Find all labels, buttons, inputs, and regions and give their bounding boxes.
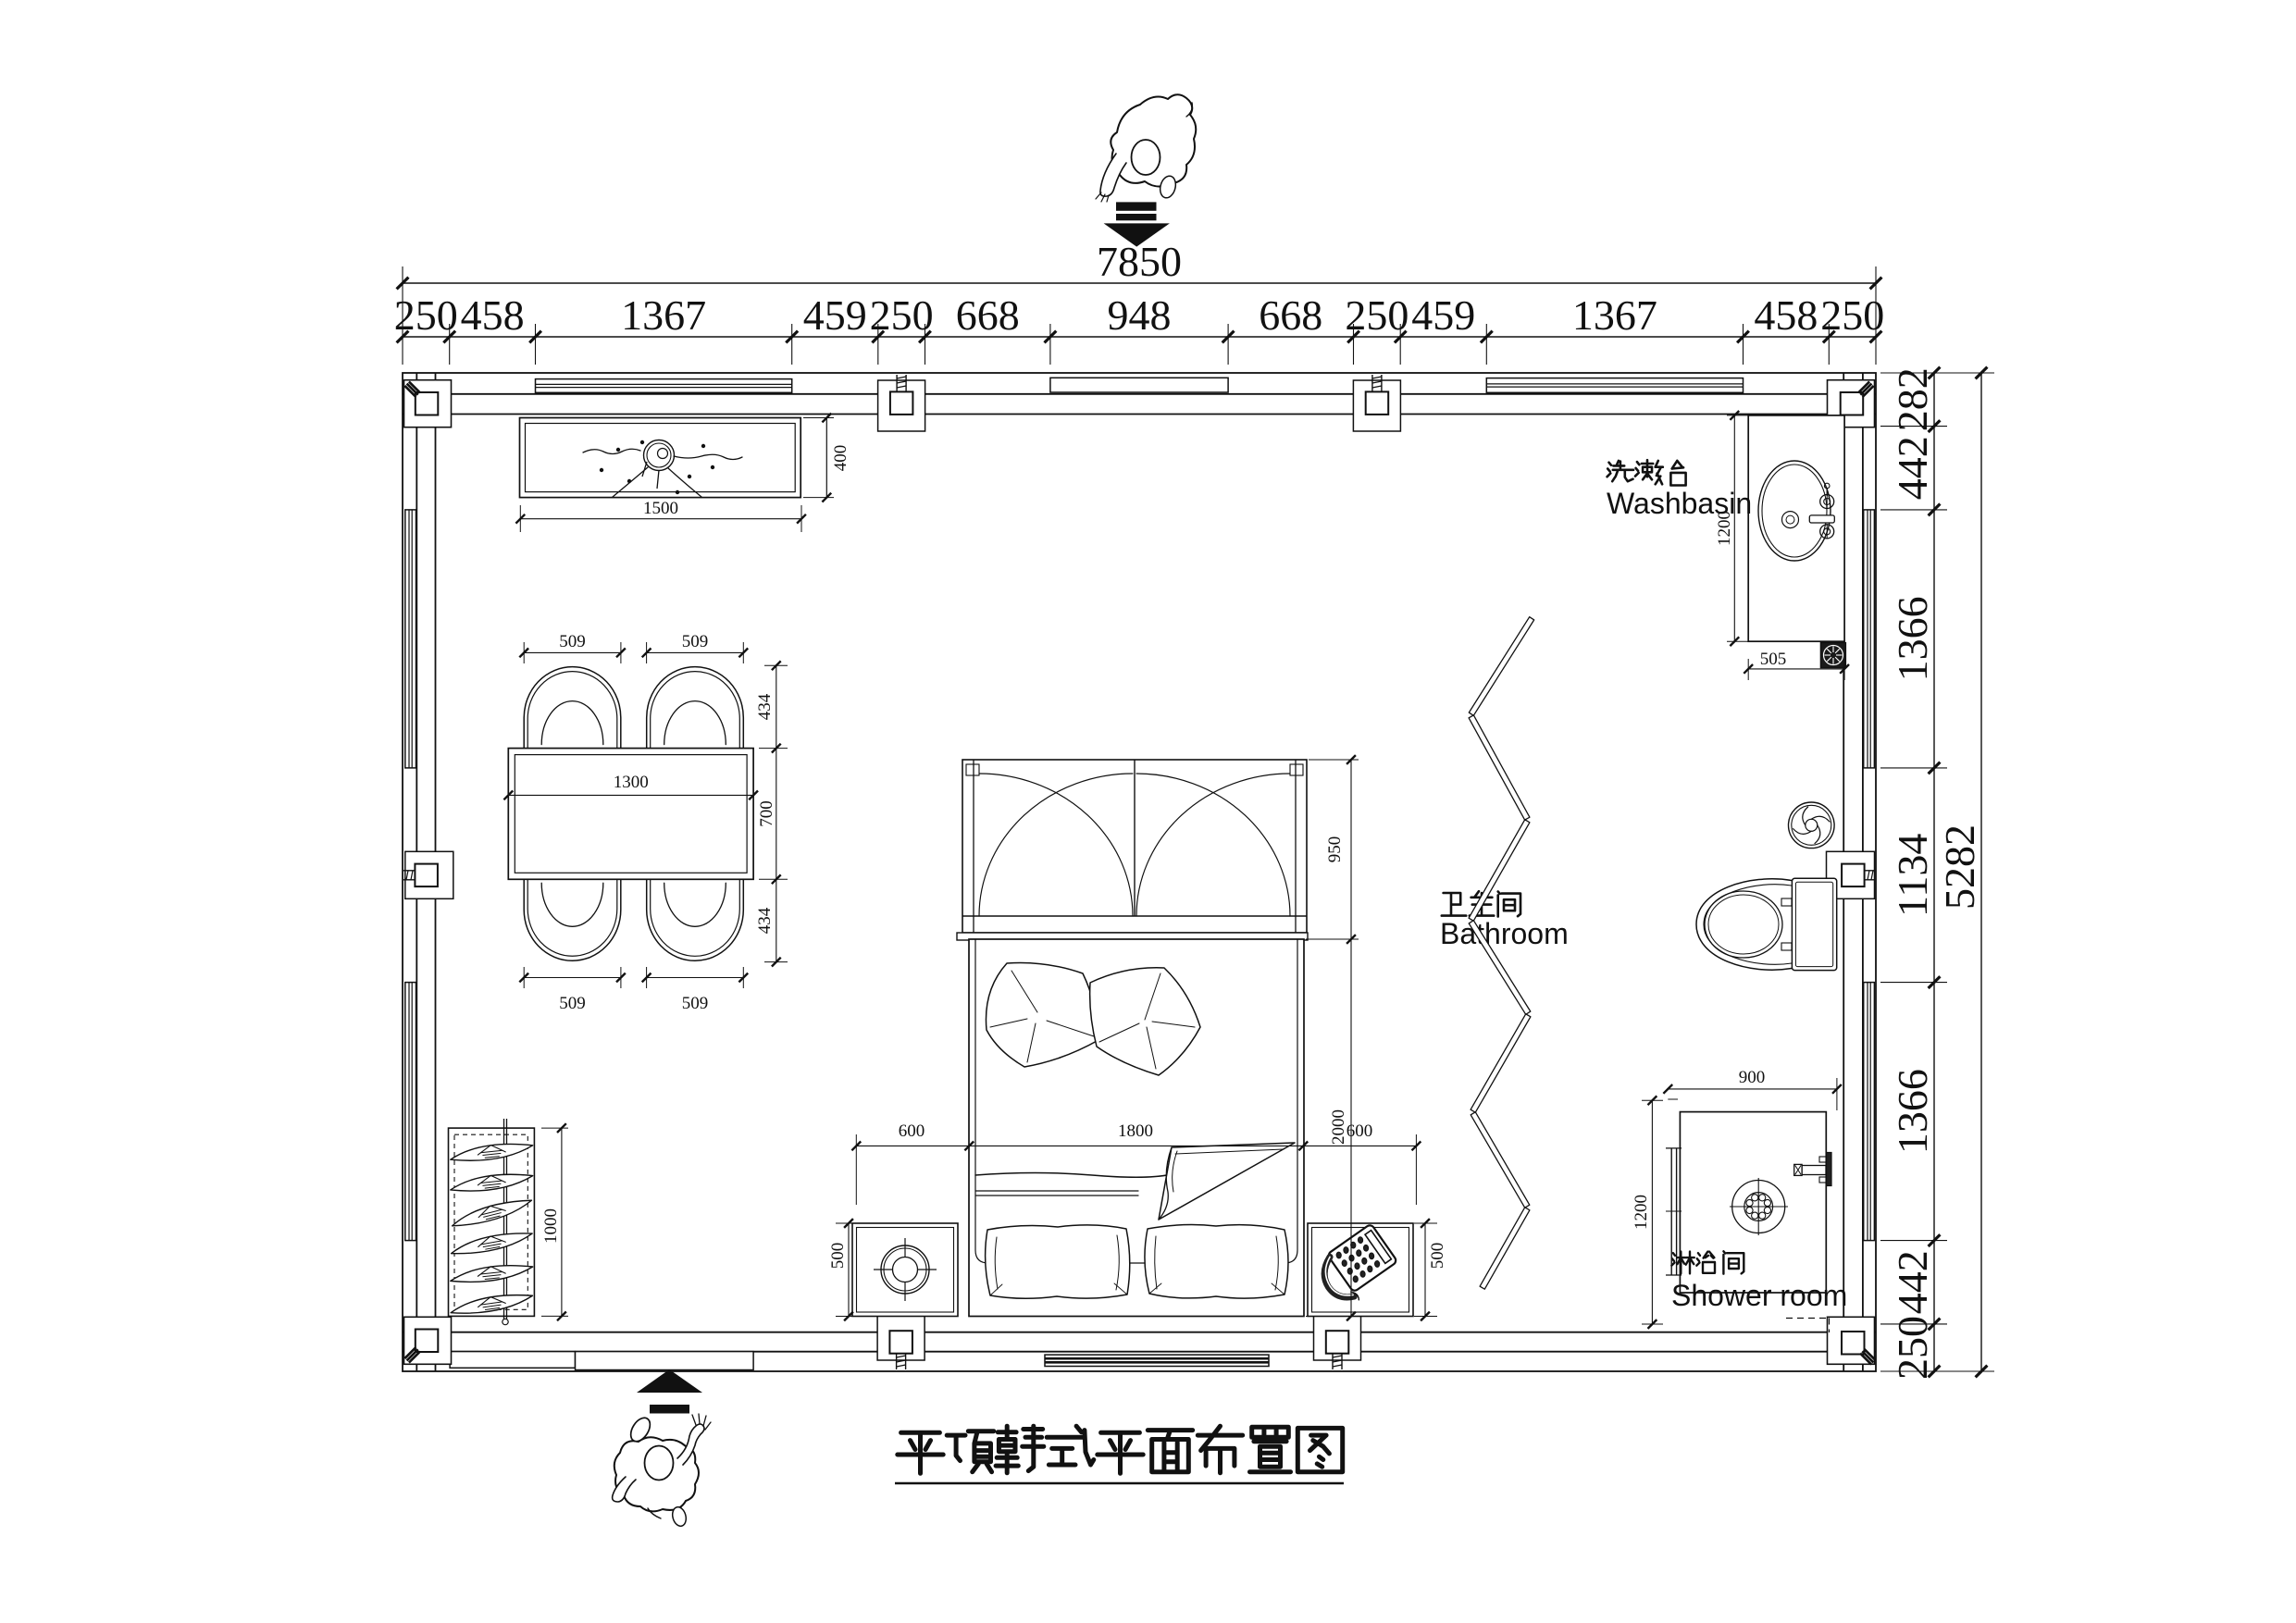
svg-text:Bathroom: Bathroom bbox=[1440, 917, 1569, 950]
svg-text:505: 505 bbox=[1760, 650, 1787, 669]
svg-text:Shower room: Shower room bbox=[1671, 1279, 1847, 1312]
svg-text:7850: 7850 bbox=[1097, 238, 1182, 285]
svg-text:1000: 1000 bbox=[541, 1208, 561, 1244]
svg-text:458: 458 bbox=[1754, 291, 1818, 339]
svg-text:442: 442 bbox=[1889, 436, 1936, 500]
svg-text:1300: 1300 bbox=[614, 773, 649, 792]
svg-text:700: 700 bbox=[757, 800, 776, 827]
svg-text:250: 250 bbox=[394, 291, 458, 339]
svg-text:1367: 1367 bbox=[621, 291, 706, 339]
svg-text:509: 509 bbox=[682, 994, 709, 1013]
svg-text:400: 400 bbox=[831, 445, 850, 472]
svg-text:668: 668 bbox=[1259, 291, 1322, 339]
svg-text:1200: 1200 bbox=[1632, 1195, 1651, 1230]
svg-text:1500: 1500 bbox=[643, 499, 678, 518]
svg-text:600: 600 bbox=[1347, 1121, 1373, 1141]
svg-text:434: 434 bbox=[755, 693, 775, 720]
svg-text:458: 458 bbox=[461, 291, 525, 339]
svg-text:950: 950 bbox=[1325, 836, 1345, 863]
svg-text:282: 282 bbox=[1889, 367, 1936, 431]
svg-text:1200: 1200 bbox=[1715, 511, 1734, 546]
svg-text:1366: 1366 bbox=[1889, 596, 1936, 681]
svg-text:900: 900 bbox=[1739, 1068, 1766, 1087]
svg-text:5282: 5282 bbox=[1936, 824, 1983, 910]
svg-text:1800: 1800 bbox=[1118, 1121, 1153, 1141]
svg-text:250: 250 bbox=[1345, 291, 1409, 339]
svg-text:2000: 2000 bbox=[1329, 1109, 1348, 1145]
svg-text:500: 500 bbox=[1428, 1243, 1447, 1270]
svg-text:434: 434 bbox=[755, 907, 775, 934]
svg-text:250: 250 bbox=[1889, 1316, 1936, 1380]
svg-text:509: 509 bbox=[559, 994, 586, 1013]
svg-text:509: 509 bbox=[682, 632, 709, 651]
svg-text:1367: 1367 bbox=[1572, 291, 1657, 339]
svg-text:442: 442 bbox=[1889, 1250, 1936, 1314]
svg-text:600: 600 bbox=[899, 1121, 925, 1141]
svg-text:459: 459 bbox=[1411, 291, 1475, 339]
svg-text:250: 250 bbox=[870, 291, 934, 339]
svg-text:1366: 1366 bbox=[1889, 1069, 1936, 1154]
svg-text:250: 250 bbox=[1820, 291, 1884, 339]
svg-text:948: 948 bbox=[1108, 291, 1172, 339]
svg-text:459: 459 bbox=[803, 291, 867, 339]
svg-text:1134: 1134 bbox=[1889, 834, 1936, 917]
svg-text:509: 509 bbox=[559, 632, 586, 651]
svg-text:500: 500 bbox=[828, 1243, 848, 1270]
svg-text:668: 668 bbox=[956, 291, 1020, 339]
